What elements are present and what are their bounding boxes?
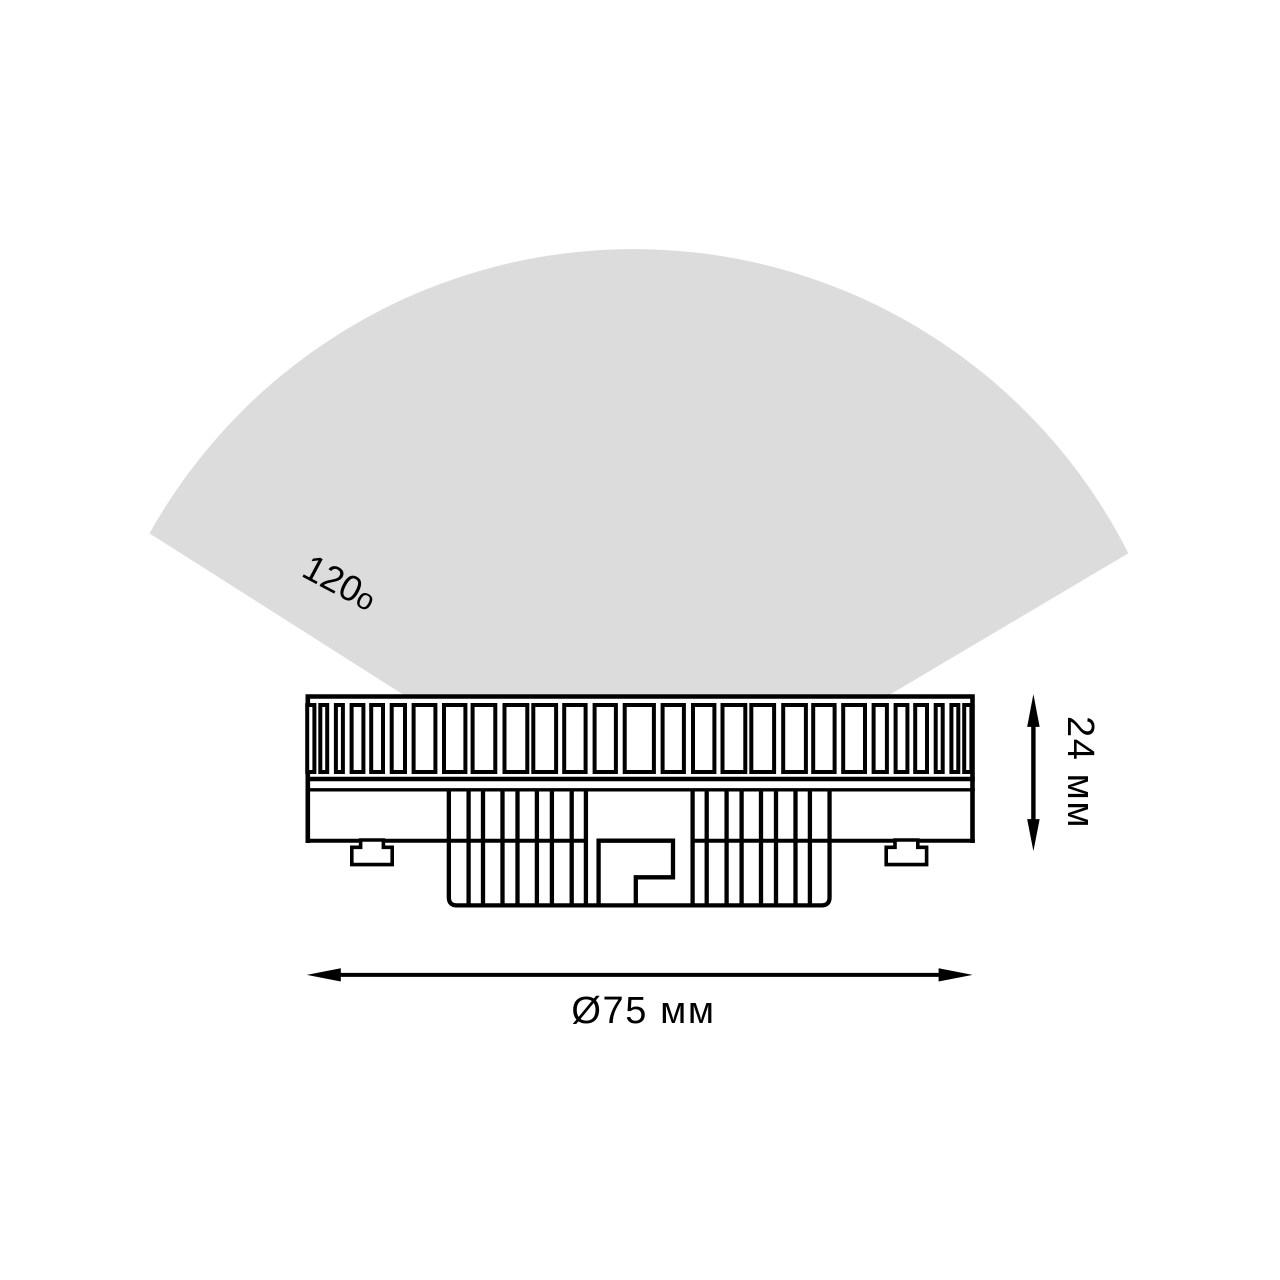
svg-text:24 мм: 24 мм: [1059, 716, 1101, 829]
svg-text:Ø75 мм: Ø75 мм: [571, 990, 715, 1032]
